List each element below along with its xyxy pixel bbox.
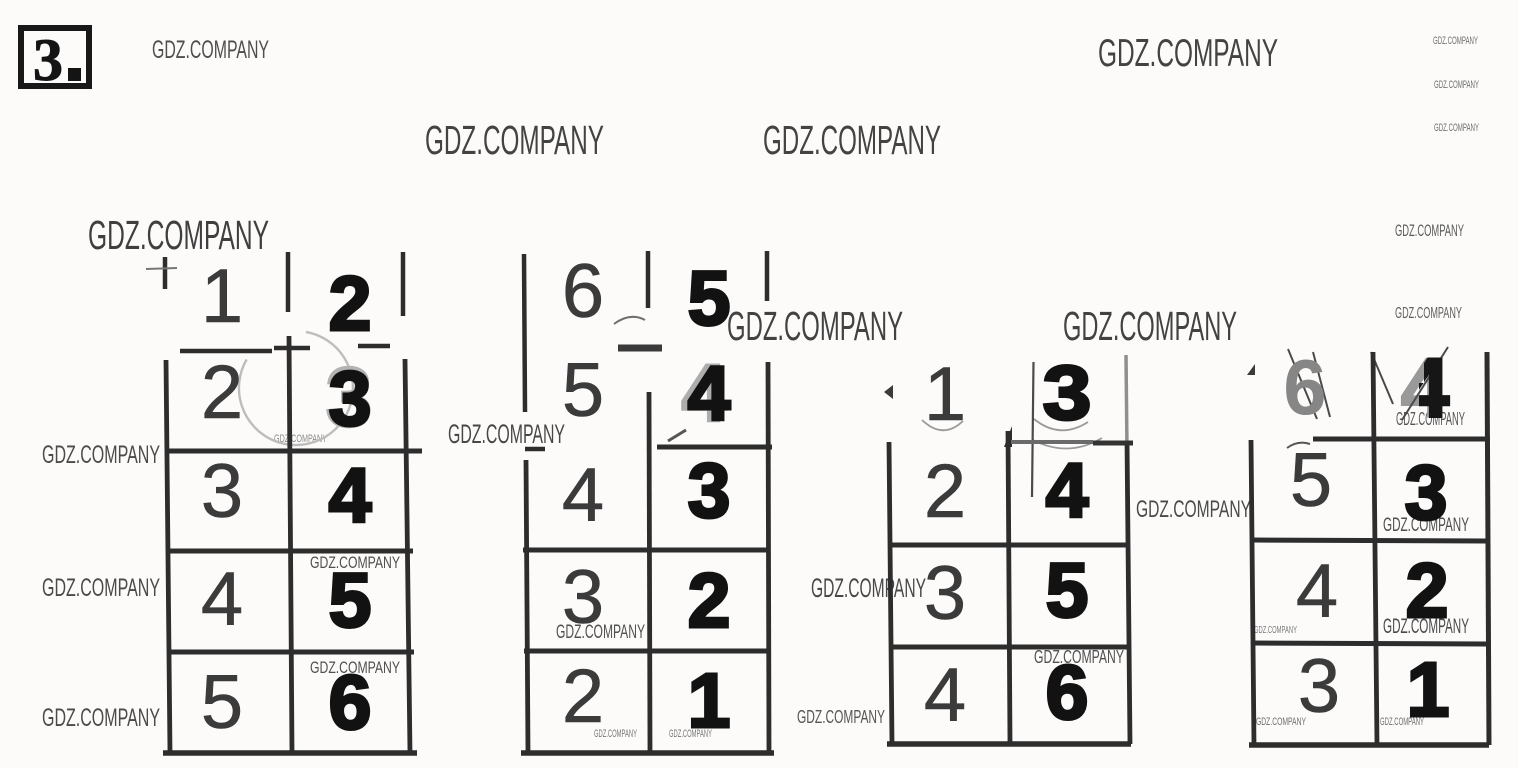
svg-text:GDZ.COMPANY: GDZ.COMPANY [1433, 35, 1478, 47]
svg-text:GDZ.COMPANY: GDZ.COMPANY [42, 574, 160, 602]
svg-text:GDZ.COMPANY: GDZ.COMPANY [1063, 303, 1237, 349]
svg-text:3: 3 [201, 449, 243, 534]
svg-text:3: 3 [33, 27, 63, 93]
svg-text:3: 3 [1405, 450, 1448, 536]
svg-text:GDZ.COMPANY: GDZ.COMPANY [42, 441, 160, 469]
svg-text:2: 2 [562, 654, 604, 739]
svg-text:5: 5 [1290, 438, 1332, 523]
svg-text:GDZ.COMPANY: GDZ.COMPANY [797, 707, 885, 727]
svg-text:GDZ.COMPANY: GDZ.COMPANY [88, 212, 269, 258]
svg-text:4: 4 [1296, 549, 1338, 634]
svg-text:1: 1 [1407, 647, 1450, 733]
svg-text:3: 3 [1043, 350, 1092, 436]
svg-text:4: 4 [201, 557, 243, 642]
svg-text:3: 3 [562, 555, 604, 640]
svg-text:GDZ.COMPANY: GDZ.COMPANY [42, 704, 160, 732]
svg-text:3: 3 [329, 356, 372, 442]
svg-text:GDZ.COMPANY: GDZ.COMPANY [1254, 625, 1297, 636]
svg-text:GDZ.COMPANY: GDZ.COMPANY [1434, 79, 1479, 91]
svg-text:GDZ.COMPANY: GDZ.COMPANY [1395, 305, 1462, 322]
svg-text:2: 2 [924, 449, 966, 534]
svg-text:GDZ.COMPANY: GDZ.COMPANY [763, 117, 941, 163]
svg-text:5: 5 [329, 558, 372, 644]
svg-text:5: 5 [562, 348, 604, 433]
svg-text:4: 4 [329, 453, 372, 539]
svg-text:6: 6 [562, 249, 604, 334]
svg-text:GDZ.COMPANY: GDZ.COMPANY [811, 573, 926, 603]
svg-text:6: 6 [1046, 650, 1089, 736]
svg-text:GDZ.COMPANY: GDZ.COMPANY [448, 419, 565, 449]
svg-text:GDZ.COMPANY: GDZ.COMPANY [1434, 122, 1479, 134]
svg-text:1: 1 [201, 254, 243, 339]
svg-text:2: 2 [201, 350, 243, 435]
svg-text:GDZ.COMPANY: GDZ.COMPANY [1136, 497, 1251, 523]
svg-text:3: 3 [924, 551, 966, 636]
svg-text:3: 3 [1298, 644, 1340, 729]
svg-text:4: 4 [1046, 448, 1089, 534]
svg-text:5: 5 [201, 660, 243, 745]
svg-text:GDZ.COMPANY: GDZ.COMPANY [1395, 221, 1464, 240]
svg-text:4: 4 [688, 351, 731, 437]
svg-text:2: 2 [688, 558, 731, 644]
svg-text:GDZ.COMPANY: GDZ.COMPANY [152, 36, 269, 64]
svg-text:GDZ.COMPANY: GDZ.COMPANY [1098, 32, 1278, 75]
svg-text:1: 1 [924, 352, 966, 437]
svg-text:6: 6 [329, 660, 372, 746]
svg-text:5: 5 [1046, 548, 1089, 634]
svg-text:GDZ.COMPANY: GDZ.COMPANY [727, 303, 903, 349]
svg-text:4: 4 [924, 653, 966, 738]
svg-text:1: 1 [688, 658, 731, 744]
svg-text:GDZ.COMPANY: GDZ.COMPANY [425, 117, 604, 163]
svg-text:5: 5 [688, 256, 731, 342]
svg-text:2: 2 [329, 261, 372, 347]
svg-text:4: 4 [562, 453, 604, 538]
svg-text:3: 3 [688, 448, 731, 534]
svg-text:6: 6 [1283, 343, 1326, 431]
svg-text:2: 2 [1406, 548, 1449, 634]
